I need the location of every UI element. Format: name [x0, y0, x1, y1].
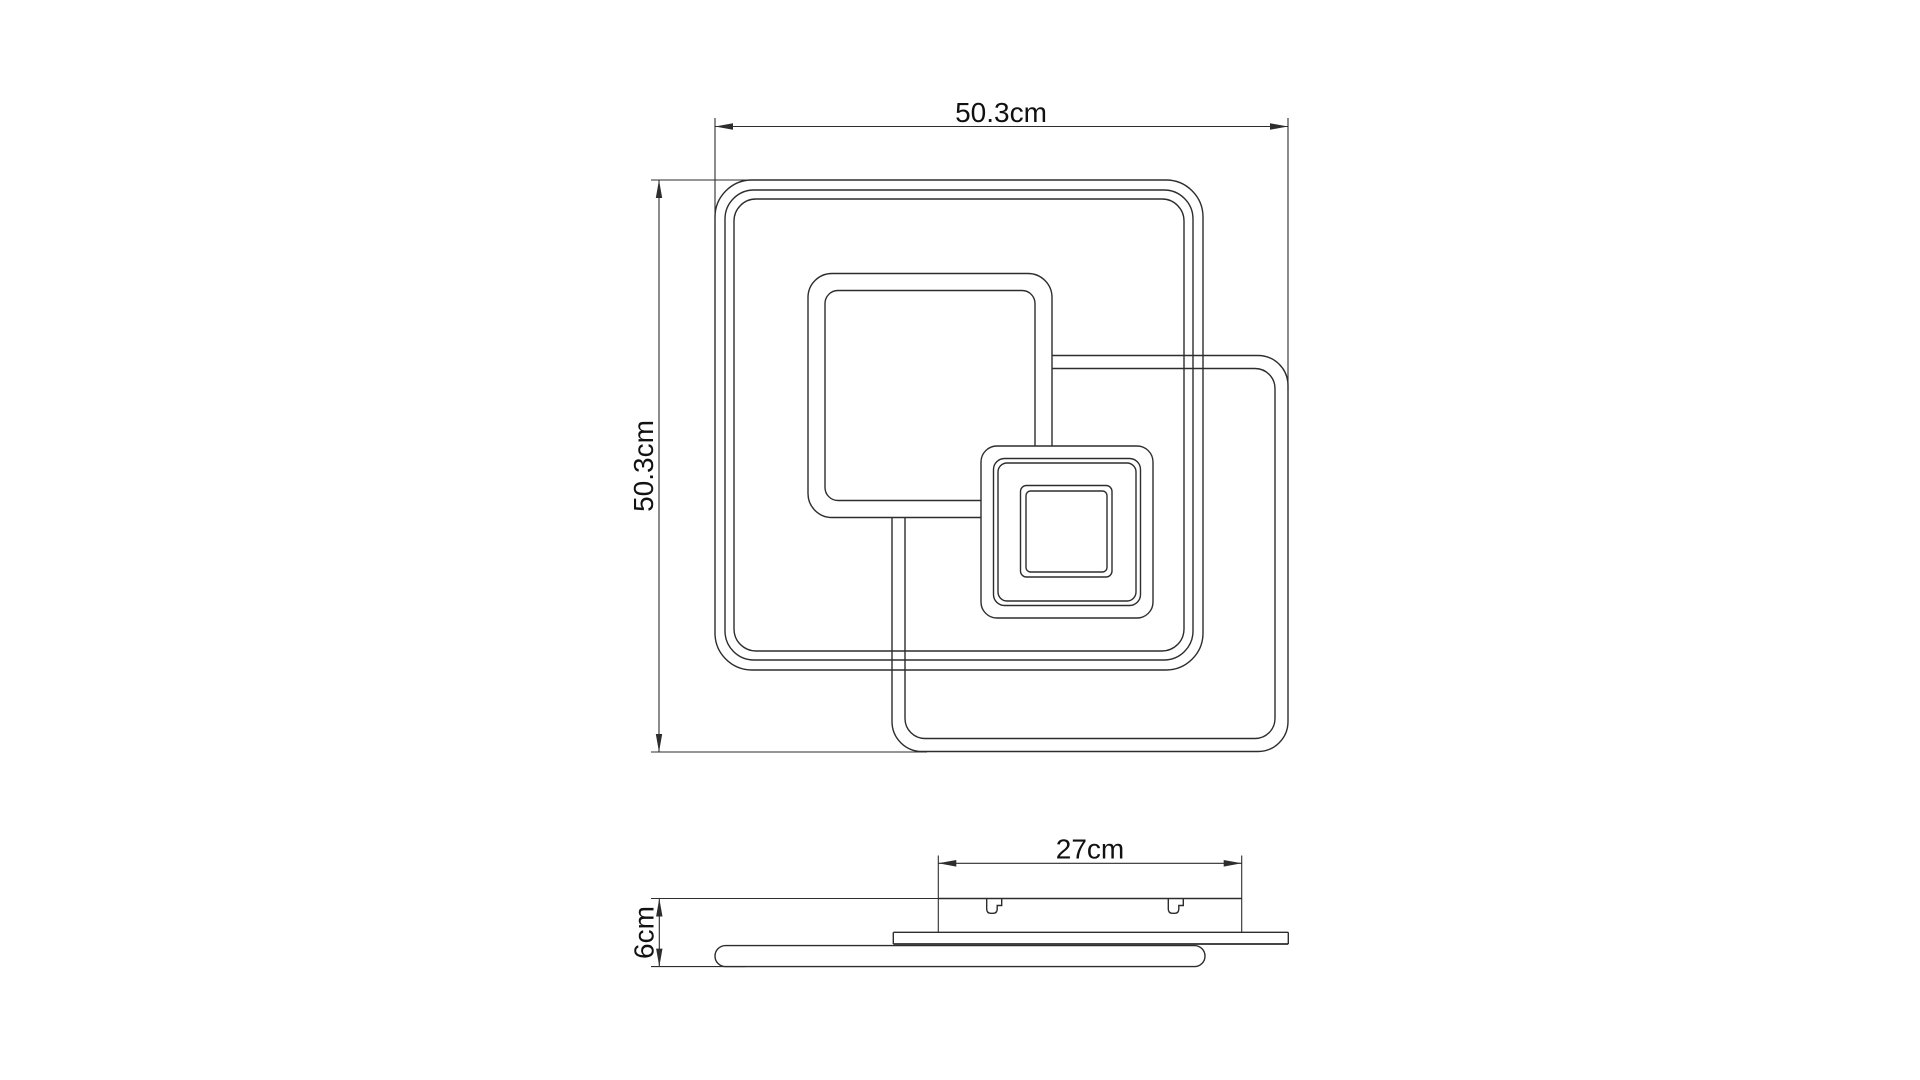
center-panel-outer: [981, 446, 1153, 618]
technical-drawing-page: 50.3cm 50.3cm: [0, 0, 1920, 1080]
height-arrow-top: [656, 180, 662, 198]
mount-width-arrow-left: [938, 860, 956, 867]
center-led-panel: [981, 446, 1153, 618]
mount-clip-right: [1168, 899, 1183, 914]
overall-width-label: 50.3cm: [955, 97, 1047, 128]
mount-width-arrow-right: [1224, 860, 1242, 867]
height-arrow-bottom: [656, 734, 662, 752]
ceiling-light-technical-drawing: 50.3cm 50.3cm: [0, 0, 1920, 1080]
width-arrow-left: [715, 123, 733, 130]
driver-housing: [893, 932, 1288, 944]
mount-width-label: 27cm: [1056, 834, 1124, 865]
light-panel-profile: [715, 946, 1205, 967]
overall-height-label: 50.3cm: [628, 420, 659, 512]
dimension-mount-width: 27cm: [938, 834, 1241, 867]
side-view: 27cm 6cm: [628, 834, 1288, 967]
top-view: 50.3cm 50.3cm: [628, 97, 1288, 752]
dimension-fixture-height: 6cm: [628, 899, 745, 967]
mount-clip-left: [987, 899, 1002, 914]
fixture-height-label: 6cm: [628, 906, 659, 959]
width-arrow-right: [1270, 123, 1288, 130]
